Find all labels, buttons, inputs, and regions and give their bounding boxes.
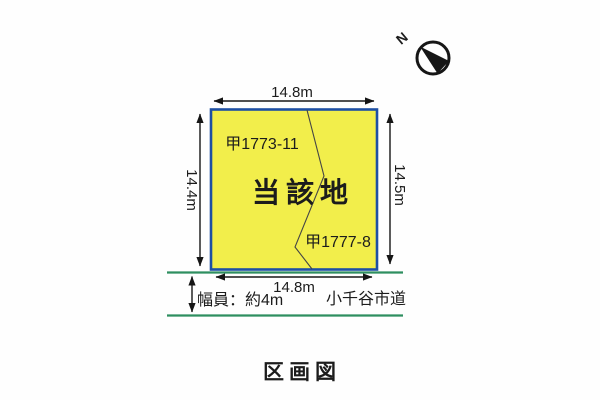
lot-diagram: N 14.8m 14.4m 14.5m 14.8m 甲1773-11 当該地 甲… <box>0 0 600 400</box>
dim-label-right: 14.5m <box>391 164 408 206</box>
page-title: 区画図 <box>263 361 341 384</box>
road-width-label: 幅員：約4m <box>197 291 283 309</box>
parcel-number-lower: 甲1777-8 <box>305 234 371 251</box>
north-label: N <box>393 29 411 48</box>
north-compass: N <box>393 29 449 74</box>
site-label: 当該地 <box>252 176 354 208</box>
dim-label-left: 14.4m <box>183 169 200 211</box>
parcel-number-upper: 甲1773-11 <box>225 136 299 153</box>
lot-diagram-svg: N 14.8m 14.4m 14.5m 14.8m 甲1773-11 当該地 甲… <box>0 0 600 400</box>
dim-label-top: 14.8m <box>271 84 313 101</box>
road-name-label: 小千谷市道 <box>326 290 406 308</box>
